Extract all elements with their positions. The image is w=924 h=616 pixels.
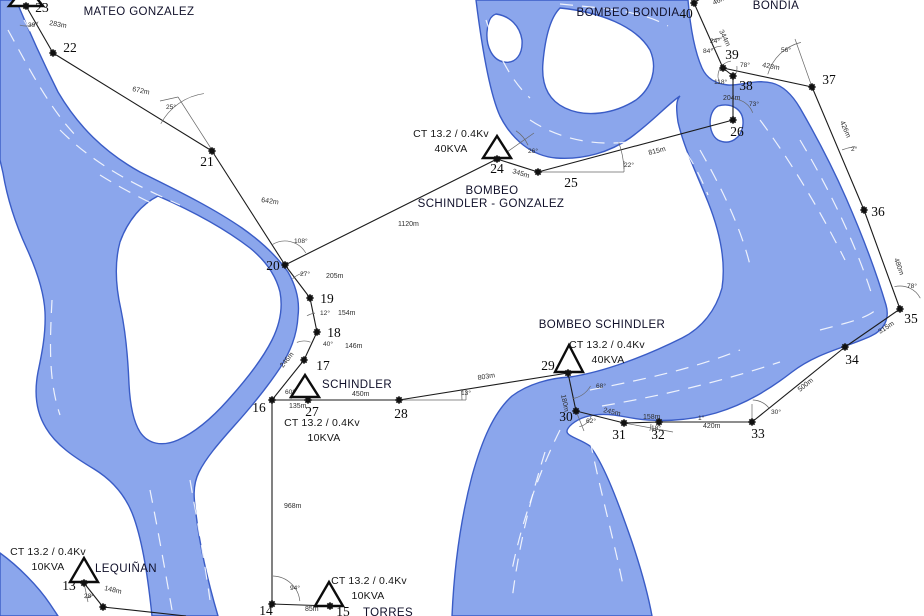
ct-kva-label-0: 40KVA [435,143,468,155]
distance-label-27-16: 135m [289,403,307,410]
node-marker-core [397,398,400,401]
node-36-label: 36 [871,204,885,219]
distance-label-18-19: 154m [338,310,356,317]
ct-kva-label-1: 10KVA [308,432,341,444]
station-label-0: MATEO GONZALEZ [84,6,195,18]
node-36-marker[interactable] [860,206,867,213]
station-label-8: TORRES [363,607,413,616]
node-23-label: 23 [35,0,49,15]
distance-label-29-28: 803m [477,372,496,382]
angle-label-23: 94° [290,584,300,592]
node-21-label: 21 [200,154,214,169]
angle-label-24: 28° [84,592,94,600]
node-marker-core [750,420,753,423]
node-38-marker[interactable] [729,72,736,79]
edge-18-19[interactable] [310,298,317,332]
node-marker-core [302,358,305,361]
node-marker-core [810,85,813,88]
node-35-marker[interactable] [896,305,903,312]
node-17-marker[interactable] [300,356,307,363]
angle-label-8: 68° [596,382,606,390]
edge-21-20[interactable] [212,151,285,265]
distance-label-22-21: 672m [132,86,151,97]
ct-kva-label-3: 10KVA [32,561,65,573]
edge-32-31[interactable] [624,422,659,423]
angle-label-12: 30° [771,408,781,416]
node-marker-core [574,409,577,412]
node-22-label: 22 [63,40,77,55]
node-marker-core [657,420,660,423]
node-25-label: 25 [564,175,578,190]
angle-label-14: 2° [851,145,858,153]
angle-label-2: 108° [294,237,308,245]
node-34-label: 34 [845,352,859,367]
node-13-marker[interactable] [80,579,87,586]
node-marker-core [101,605,104,608]
node-26-label: 26 [730,124,744,139]
node-40-label: 40 [679,6,693,21]
node-marker-core [721,66,724,69]
node-marker-core [731,118,734,121]
node-n1-marker[interactable] [99,603,106,610]
node-15-marker[interactable] [326,602,333,609]
node-32-label: 32 [651,427,665,442]
angle-label-0: 39° [28,21,38,29]
angle-label-20: 22° [624,161,634,169]
node-marker-core [82,581,85,584]
node-marker-core [51,51,54,54]
distance-label-34-33: 500m [797,377,815,394]
node-16-marker[interactable] [268,396,275,403]
node-marker-core [270,398,273,401]
distance-label-25-26: 815m [648,146,667,157]
angle-label-9: 62° [586,417,596,425]
node-31-marker[interactable] [620,419,627,426]
ct-rating-label-3: CT 13.2 / 0.4Kv [10,546,86,558]
node-18-marker[interactable] [313,328,320,335]
distance-label-26-38: 204m [723,95,741,102]
node-29-label: 29 [541,358,555,373]
node-32-marker[interactable] [655,418,662,425]
ct-rating-label-0: CT 13.2 / 0.4Kv [413,128,489,140]
distance-label-13-n1: 148m [104,585,123,596]
node-marker-core [731,74,734,77]
node-marker-core [306,398,309,401]
station-label-7: LEQUIÑAN [95,562,157,575]
node-23-marker[interactable] [22,2,29,9]
distance-label-19-20: 205m [326,273,344,280]
ct-kva-label-2: 40KVA [592,354,625,366]
node-35-label: 35 [904,311,918,326]
node-20-marker[interactable] [281,261,288,268]
node-37-label: 37 [822,72,836,87]
node-34-marker[interactable] [841,343,848,350]
node-marker-core [862,208,865,211]
angle-label-16: 78° [740,61,750,69]
node-24-label: 24 [490,161,504,176]
map-viewport: 283m672m642m1120m345m815m204m344m46m428m… [0,0,924,616]
node-17-label: 17 [316,358,330,373]
node-39-marker[interactable] [719,64,726,71]
angle-arc [297,341,311,342]
distance-label-33-32: 420m [703,423,721,430]
angle-label-7: 13° [461,389,471,397]
distance-label-24-25: 345m [511,168,530,180]
node-28-label: 28 [394,406,408,421]
station-label-3: BOMBEO [466,185,519,197]
distance-label-23-22: 283m [49,20,68,30]
angle-label-19: 26° [528,147,538,155]
distance-label-17-18: 146m [345,343,363,350]
distance-label-20-24: 1120m [398,221,419,228]
node-marker-core [315,330,318,333]
angle-arc [753,400,769,408]
node-20-label: 20 [266,258,280,273]
node-16-label: 16 [252,400,266,415]
construction-guide [795,39,812,87]
node-marker-core [536,170,539,173]
angle-label-3: 27° [300,270,310,278]
river-2 [452,0,887,616]
node-marker-core [566,371,569,374]
map-canvas[interactable]: 283m672m642m1120m345m815m204m344m46m428m… [0,0,924,616]
station-label-4: SCHINDLER - GONZALEZ [418,198,565,210]
station-label-5: BOMBEO SCHINDLER [539,319,666,331]
angle-label-5: 40° [323,340,333,348]
node-marker-core [210,149,213,152]
edge-17-18[interactable] [304,332,317,360]
ct-rating-label-2: CT 13.2 / 0.4Kv [569,339,645,351]
node-30-marker[interactable] [572,407,579,414]
node-15-label: 15 [336,604,350,616]
node-31-label: 31 [612,427,626,442]
ct-rating-label-4: CT 13.2 / 0.4Kv [331,575,407,587]
node-30-label: 30 [559,409,573,424]
angle-label-15: 56° [781,46,791,54]
station-label-2: BONDIA [753,0,800,12]
construction-guide [160,97,178,101]
edge-20-24[interactable] [285,159,497,265]
node-marker-core [622,421,625,424]
angle-label-17: 118° [714,78,728,86]
node-marker-core [24,4,27,7]
node-29-marker[interactable] [564,369,571,376]
distance-label-16-14: 968m [284,503,302,510]
distance-label-39-37: 428m [762,62,781,72]
node-18-label: 18 [327,325,341,340]
station-label-6: SCHINDLER [322,379,392,391]
transformer-icon-t27[interactable] [291,375,319,397]
distance-label-36-35: 480m [892,257,905,276]
node-marker-core [843,345,846,348]
node-37-marker[interactable] [808,83,815,90]
node-marker-core [692,1,695,4]
node-33-label: 33 [751,426,765,441]
angle-label-1: 25° [166,103,176,111]
distance-label-37-36: 426m [838,120,851,139]
angle-label-21: 24° [710,37,720,45]
node-25-marker[interactable] [534,168,541,175]
angle-label-22: 84° [703,47,713,55]
node-14-label: 14 [259,603,273,616]
angle-label-11: 1° [698,414,705,422]
node-13-label: 13 [62,578,76,593]
node-27-marker[interactable] [304,396,311,403]
node-marker-core [328,604,331,607]
distance-label-40-stub: 46m [712,0,727,7]
node-marker-core [898,307,901,310]
node-22-marker[interactable] [49,49,56,56]
node-26-marker[interactable] [729,116,736,123]
node-19-marker[interactable] [306,294,313,301]
node-marker-core [308,296,311,299]
node-39-label: 39 [725,47,739,62]
distance-label-28-27: 450m [352,391,370,398]
ct-kva-label-4: 10KVA [352,590,385,602]
construction-guide [624,423,673,432]
node-marker-core [283,263,286,266]
station-label-1: BOMBEO BONDIA [577,7,680,19]
node-38-label: 38 [739,78,753,93]
node-33-marker[interactable] [748,418,755,425]
node-19-label: 19 [320,291,334,306]
angle-label-18: 73° [749,100,759,108]
construction-guide [178,97,212,150]
ct-rating-label-1: CT 13.2 / 0.4Kv [284,417,360,429]
angle-label-4: 12° [320,309,330,317]
angle-label-13: 78° [907,282,917,290]
distance-label-21-20: 642m [261,197,279,206]
node-28-marker[interactable] [395,396,402,403]
